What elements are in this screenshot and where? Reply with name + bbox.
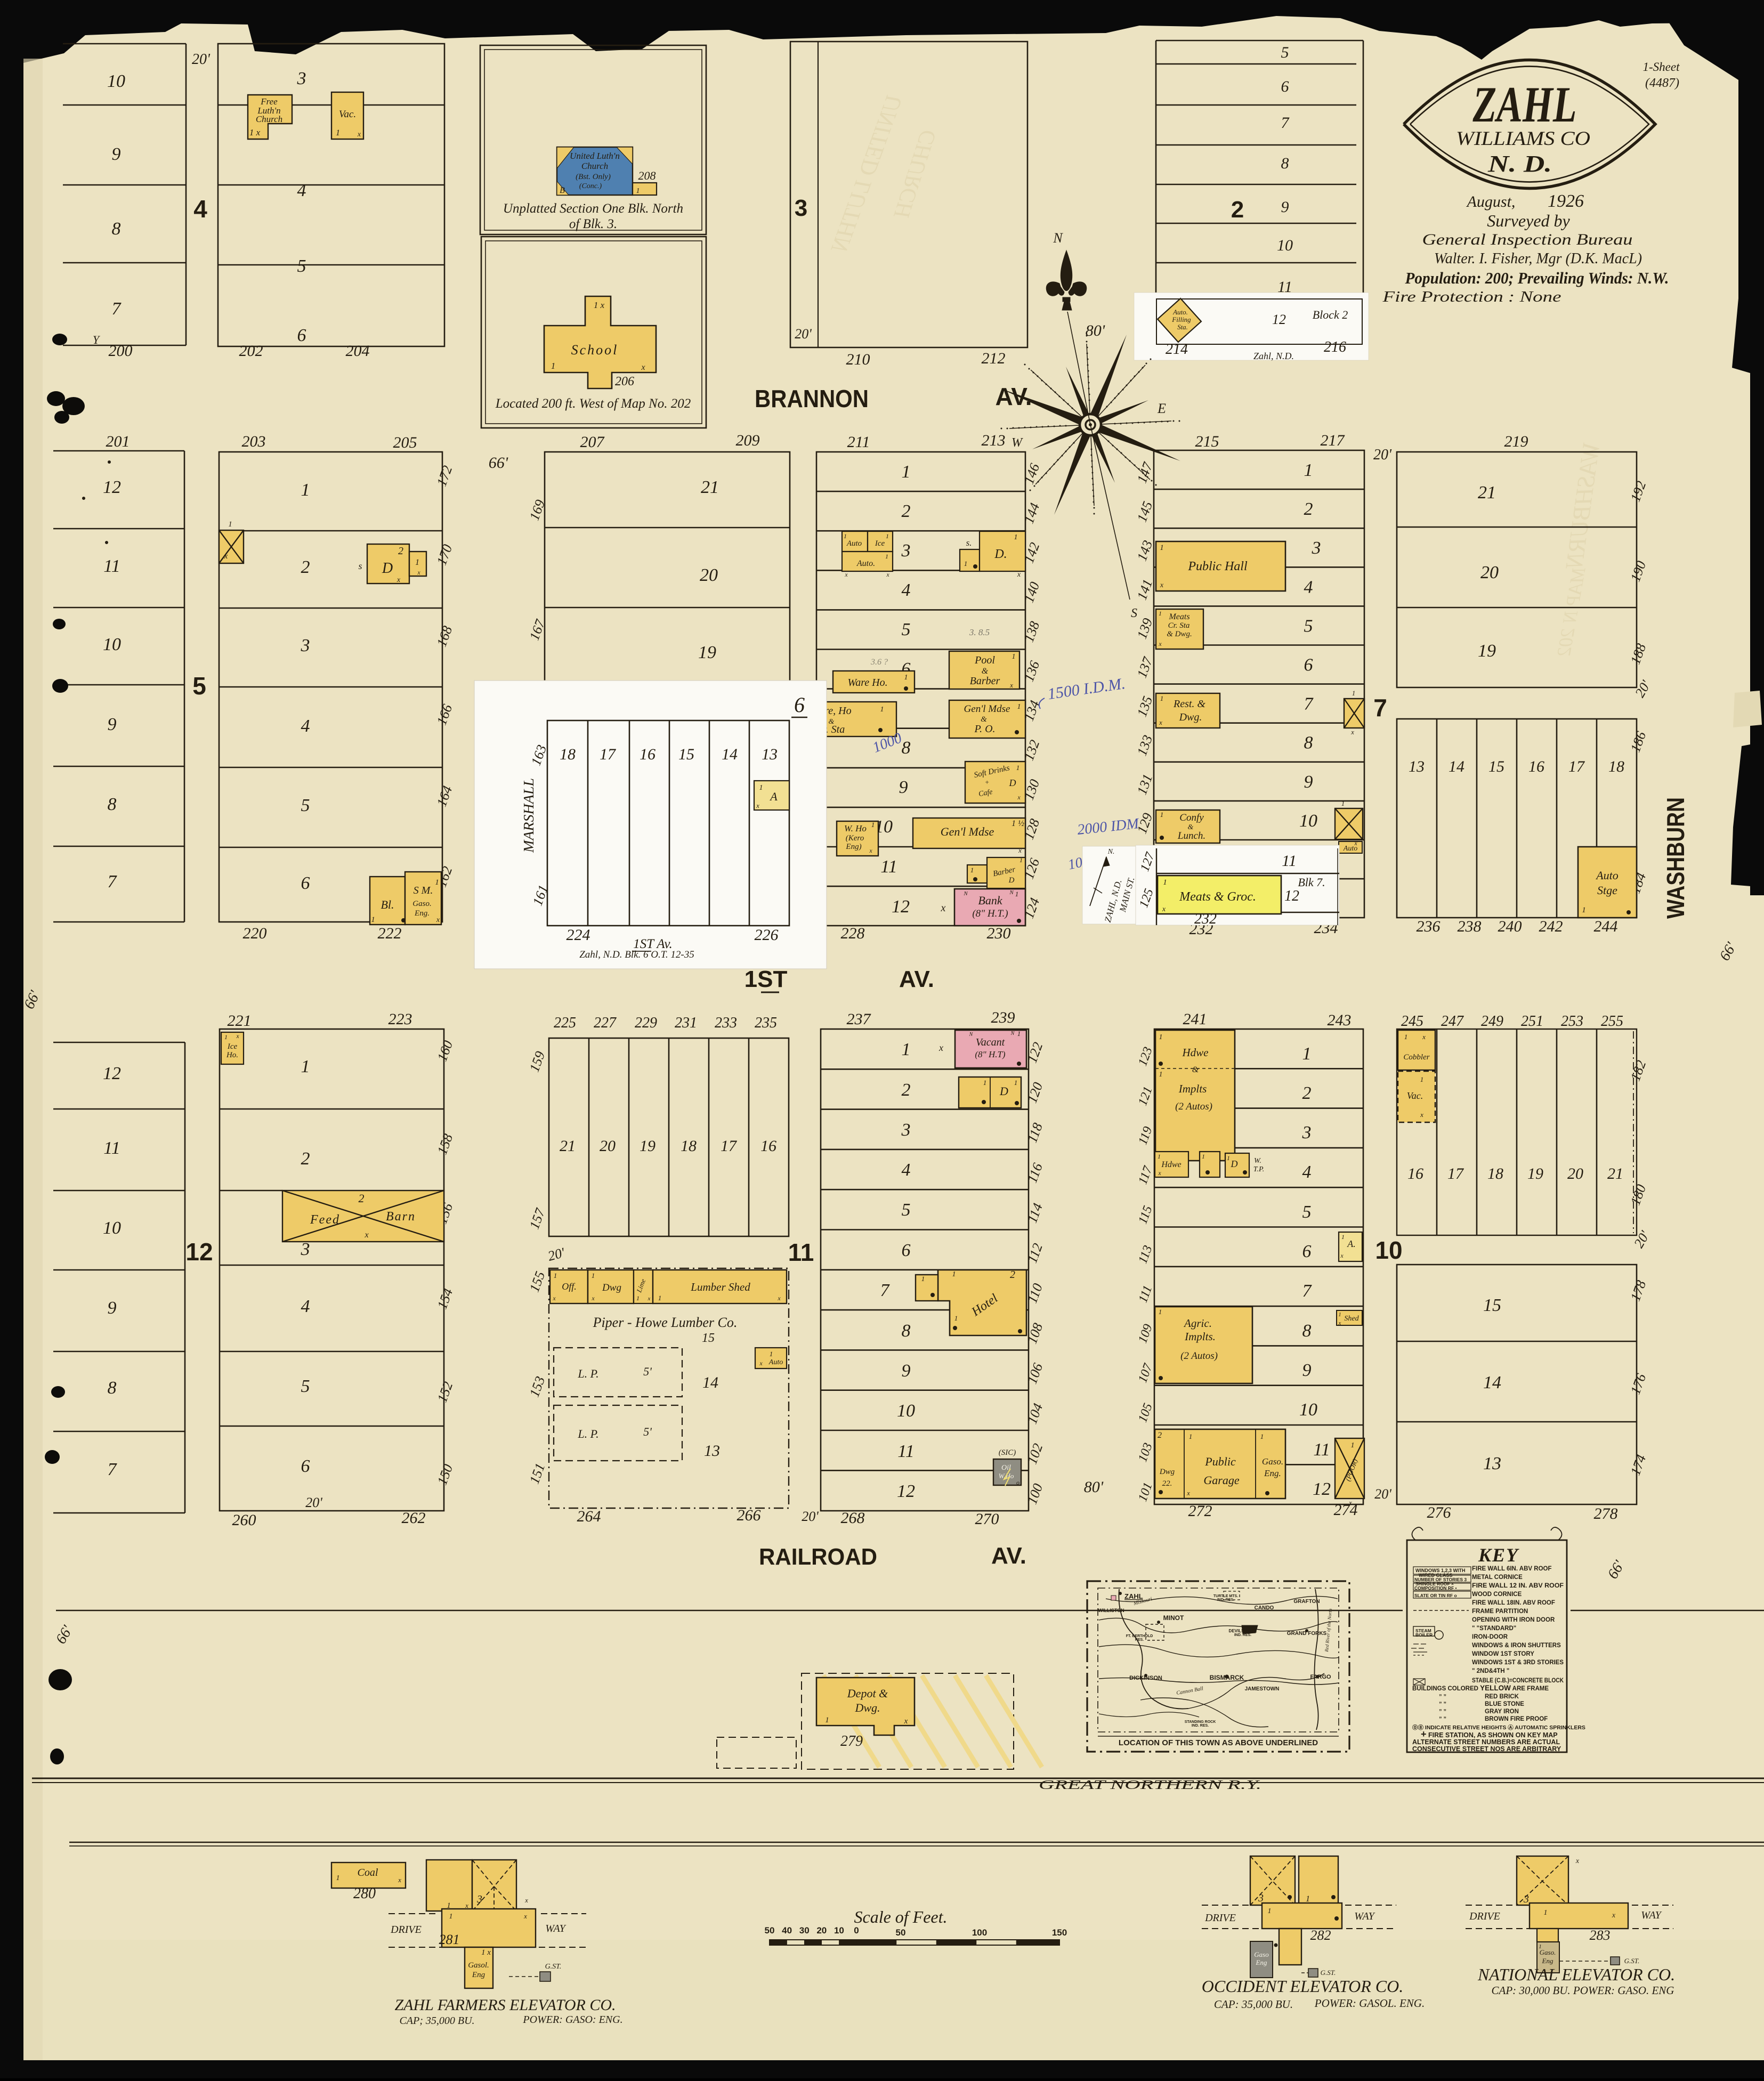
svg-text:20: 20 <box>816 1925 827 1936</box>
svg-text:12: 12 <box>1313 1479 1331 1499</box>
svg-text:Meats & Groc.: Meats & Groc. <box>1179 890 1256 904</box>
svg-text:x: x <box>1159 718 1162 726</box>
svg-text:3: 3 <box>901 541 911 561</box>
svg-text:7: 7 <box>880 1281 891 1300</box>
svg-text:DRIVE: DRIVE <box>1469 1910 1500 1922</box>
svg-text:1: 1 <box>1015 890 1019 898</box>
svg-text:1: 1 <box>1338 1311 1341 1318</box>
svg-text:19: 19 <box>640 1137 656 1155</box>
svg-text:279: 279 <box>840 1733 863 1750</box>
svg-text:5: 5 <box>902 1200 911 1220</box>
svg-text:214: 214 <box>1166 341 1188 358</box>
svg-text:Barn: Barn <box>386 1210 416 1224</box>
svg-text:AV.: AV. <box>991 1543 1026 1569</box>
svg-text:1: 1 <box>964 560 968 568</box>
svg-text:20': 20' <box>795 326 812 342</box>
svg-text:4: 4 <box>193 195 207 223</box>
svg-text:8: 8 <box>112 219 121 239</box>
svg-text:5: 5 <box>1304 616 1313 636</box>
svg-text:260: 260 <box>232 1511 256 1529</box>
svg-text:7: 7 <box>1304 694 1314 714</box>
svg-text:FIRE WALL 12 IN. ABV ROOF: FIRE WALL 12 IN. ABV ROOF <box>1472 1583 1564 1589</box>
svg-text:10: 10 <box>103 1218 121 1238</box>
svg-text:x: x <box>1162 905 1166 913</box>
svg-text:5: 5 <box>192 672 206 700</box>
svg-text:1: 1 <box>551 361 556 371</box>
svg-text:L. P.: L. P. <box>577 1427 598 1440</box>
svg-text:Unplatted Section One Blk. Nor: Unplatted Section One Blk. North <box>503 201 683 216</box>
svg-text:228: 228 <box>841 925 865 942</box>
svg-text:Agric.: Agric. <box>1183 1317 1212 1330</box>
svg-text:243: 243 <box>1328 1011 1352 1029</box>
svg-text:1: 1 <box>885 553 888 560</box>
svg-text:STANDING ROCK: STANDING ROCK <box>1185 1720 1216 1724</box>
svg-text:Auto: Auto <box>768 1358 783 1366</box>
svg-text:Vac.: Vac. <box>1407 1090 1423 1101</box>
svg-text:1: 1 <box>1159 1308 1162 1316</box>
svg-text:223: 223 <box>389 1010 412 1028</box>
svg-text:Dwg.: Dwg. <box>854 1701 880 1714</box>
svg-text:" "STANDARD": " "STANDARD" <box>1472 1625 1516 1632</box>
svg-text:N: N <box>1009 889 1014 896</box>
svg-text:United Luth'n: United Luth'n <box>570 151 620 161</box>
svg-text:2: 2 <box>1302 1083 1312 1103</box>
svg-text:274: 274 <box>1334 1501 1358 1519</box>
svg-text:7: 7 <box>1373 694 1387 722</box>
svg-text:Bl.: Bl. <box>381 898 394 911</box>
svg-text:JAMESTOWN: JAMESTOWN <box>1245 1686 1280 1692</box>
svg-text:LOCATION OF THIS TOWN AS ABOVE: LOCATION OF THIS TOWN AS ABOVE UNDERLINE… <box>1119 1738 1318 1747</box>
svg-text:1: 1 <box>1582 906 1586 914</box>
svg-text:19: 19 <box>698 643 716 662</box>
svg-text:11: 11 <box>788 1238 814 1266</box>
svg-text:7: 7 <box>1302 1281 1313 1301</box>
svg-text:(2 Autos): (2 Autos) <box>1180 1350 1218 1362</box>
svg-text:(4487): (4487) <box>1645 76 1679 90</box>
svg-text:Eng: Eng <box>472 1971 485 1979</box>
svg-text:18: 18 <box>681 1137 697 1155</box>
svg-text:200: 200 <box>109 342 133 360</box>
svg-text:Public: Public <box>1204 1455 1236 1468</box>
svg-text:1: 1 <box>825 1716 829 1724</box>
svg-text:x: x <box>886 571 889 578</box>
svg-text:x: x <box>1158 1169 1161 1177</box>
svg-text:1 x: 1 x <box>249 127 261 137</box>
svg-text:Auto.: Auto. <box>856 559 875 568</box>
svg-text:August,: August, <box>1466 193 1516 210</box>
svg-text:3: 3 <box>795 195 807 221</box>
svg-text:1: 1 <box>228 520 232 529</box>
svg-text:230: 230 <box>987 925 1011 942</box>
svg-text:12: 12 <box>103 477 121 497</box>
svg-text:11: 11 <box>1313 1440 1330 1460</box>
svg-text:21: 21 <box>1607 1165 1623 1183</box>
svg-text:Vac.: Vac. <box>339 109 356 120</box>
svg-text:1: 1 <box>871 821 875 829</box>
svg-text:Bank: Bank <box>978 894 1002 907</box>
svg-text:Eng: Eng <box>1542 1957 1553 1965</box>
svg-text:Located 200 ft. West of Map No: Located 200 ft. West of Map No. 202 <box>495 396 691 411</box>
svg-text:20': 20' <box>305 1495 322 1510</box>
svg-text:8: 8 <box>1304 733 1313 753</box>
svg-text:x: x <box>1017 571 1021 579</box>
svg-text:WILLIAMS CO: WILLIAMS CO <box>1456 128 1590 150</box>
svg-text:⓪⑧ INDICATE RELATIVE HEIGHTS Ⓐ: ⓪⑧ INDICATE RELATIVE HEIGHTS Ⓐ AUTOMATIC… <box>1412 1724 1585 1731</box>
svg-text:3: 3 <box>901 1120 911 1140</box>
svg-text:18: 18 <box>1487 1165 1503 1183</box>
svg-text:6: 6 <box>1281 78 1289 95</box>
svg-text:17: 17 <box>600 746 617 763</box>
svg-text:17: 17 <box>721 1137 738 1155</box>
svg-text:10: 10 <box>107 71 125 91</box>
svg-text:9: 9 <box>1304 772 1313 792</box>
svg-text:253: 253 <box>1561 1013 1583 1030</box>
svg-text:1 x: 1 x <box>481 1948 491 1957</box>
svg-text:&: & <box>981 715 987 724</box>
svg-text:6: 6 <box>301 1456 310 1476</box>
svg-text:Fire Protection : None: Fire Protection : None <box>1382 288 1561 305</box>
svg-text:12: 12 <box>897 1481 915 1501</box>
svg-text:IND. RES.: IND. RES. <box>1192 1724 1209 1728</box>
svg-text:20: 20 <box>700 565 718 585</box>
svg-text:210: 210 <box>846 351 870 368</box>
svg-text:10: 10 <box>897 1401 915 1421</box>
svg-text:Stge: Stge <box>1597 884 1617 897</box>
svg-text:1: 1 <box>658 1294 662 1302</box>
svg-text:1: 1 <box>636 1294 640 1302</box>
svg-text:244: 244 <box>1594 918 1618 935</box>
svg-text:(Conc.): (Conc.) <box>579 182 602 190</box>
svg-text:Block 2: Block 2 <box>1313 308 1348 321</box>
svg-text:Blk 7.: Blk 7. <box>1298 876 1325 889</box>
svg-text:Church: Church <box>256 114 282 124</box>
svg-text:D: D <box>999 1084 1008 1098</box>
svg-text:x: x <box>357 131 361 139</box>
svg-text:GREAT NORTHERN R.Y.: GREAT NORTHERN R.Y. <box>1039 1778 1261 1792</box>
svg-text:1: 1 <box>983 1079 987 1087</box>
svg-text:236: 236 <box>1417 918 1441 935</box>
svg-text:231: 231 <box>675 1015 697 1031</box>
svg-text:Dwg.: Dwg. <box>1179 711 1202 723</box>
svg-text:247: 247 <box>1441 1013 1464 1030</box>
svg-text:8: 8 <box>902 738 911 758</box>
svg-text:1: 1 <box>1351 1442 1355 1450</box>
svg-text:150: 150 <box>1052 1928 1067 1938</box>
svg-text:1: 1 <box>1404 1033 1408 1041</box>
svg-text:Feed: Feed <box>310 1213 340 1227</box>
svg-text:IND. RES.: IND. RES. <box>1234 1633 1251 1637</box>
svg-text:20': 20' <box>192 51 211 68</box>
svg-text:x: x <box>417 569 420 576</box>
svg-text:206: 206 <box>615 375 634 388</box>
svg-text:Confy: Confy <box>1179 812 1204 823</box>
svg-text:6: 6 <box>301 873 310 893</box>
svg-text:2: 2 <box>398 545 403 557</box>
svg-text:FIRE WALL 6IN. ABV ROOF: FIRE WALL 6IN. ABV ROOF <box>1472 1566 1552 1572</box>
svg-text:22.: 22. <box>1162 1479 1172 1488</box>
svg-text:Ware Ho.: Ware Ho. <box>847 677 887 689</box>
svg-text:CAP: 30,000 BU. POWER: GASO: CAP: 30,000 BU. POWER: GASO. ENG <box>1492 1984 1674 1997</box>
svg-text:66': 66' <box>489 454 508 472</box>
svg-text:W: W <box>1012 436 1023 450</box>
svg-text:x: x <box>1340 1252 1344 1259</box>
svg-text:" 2ND&4TH ": " 2ND&4TH " <box>1472 1668 1509 1674</box>
svg-text:2: 2 <box>1010 1269 1015 1281</box>
svg-text:S: S <box>1131 606 1137 620</box>
svg-text:2: 2 <box>902 1080 911 1100</box>
svg-text:W.: W. <box>1254 1157 1261 1165</box>
svg-text:2: 2 <box>1231 197 1244 223</box>
svg-text:7: 7 <box>1281 114 1290 132</box>
svg-text:Eng: Eng <box>1256 1958 1267 1966</box>
svg-text:3: 3 <box>297 69 306 88</box>
svg-text:11: 11 <box>1282 852 1297 870</box>
svg-text:1: 1 <box>1158 1153 1161 1160</box>
svg-text:B: B <box>560 186 565 195</box>
svg-text:5: 5 <box>902 620 911 639</box>
svg-text:1: 1 <box>1260 1432 1264 1440</box>
svg-text:Lumber Shed: Lumber Shed <box>690 1281 750 1293</box>
svg-text:x: x <box>398 1876 401 1884</box>
svg-text:(2 Autos): (2 Autos) <box>1175 1101 1212 1112</box>
svg-text:270: 270 <box>975 1510 999 1528</box>
svg-text:x: x <box>524 1896 528 1904</box>
svg-text:WAY: WAY <box>1354 1910 1375 1922</box>
svg-text:x: x <box>364 1230 368 1240</box>
svg-text:1 x: 1 x <box>594 300 605 310</box>
svg-text:216: 216 <box>1324 339 1346 355</box>
svg-text:235: 235 <box>755 1015 777 1031</box>
svg-text:x: x <box>436 916 440 924</box>
svg-text:16: 16 <box>760 1137 776 1155</box>
svg-text:8: 8 <box>902 1321 911 1341</box>
svg-text:2: 2 <box>301 1149 310 1169</box>
svg-text:9: 9 <box>108 1298 117 1318</box>
svg-text:OPENING WITH IRON DOOR: OPENING WITH IRON DOOR <box>1472 1617 1555 1623</box>
svg-text:240: 240 <box>1498 918 1522 935</box>
svg-text:x: x <box>1350 728 1354 736</box>
svg-text:19: 19 <box>1527 1165 1543 1183</box>
svg-text:” ”: ” ” <box>1439 1708 1446 1715</box>
svg-text:Zahl, N.D.: Zahl, N.D. <box>1253 351 1294 361</box>
svg-text:3: 3 <box>301 1240 310 1259</box>
svg-text:x: x <box>1158 640 1162 647</box>
svg-text:DEVILS LAKE: DEVILS LAKE <box>1229 1629 1258 1633</box>
svg-text:1: 1 <box>970 866 974 874</box>
svg-text:DRIVE: DRIVE <box>1204 1912 1236 1924</box>
svg-text:x: x <box>1160 581 1164 589</box>
svg-text:10: 10 <box>103 635 121 654</box>
svg-text:278: 278 <box>1594 1505 1618 1523</box>
svg-text:245: 245 <box>1401 1013 1423 1030</box>
svg-text:226: 226 <box>755 926 779 944</box>
svg-text:BOILER: BOILER <box>1415 1632 1433 1638</box>
svg-text:G.ST.: G.ST. <box>1624 1957 1640 1965</box>
svg-text:x: x <box>777 1294 781 1302</box>
svg-text:242: 242 <box>1539 918 1563 935</box>
svg-text:1: 1 <box>954 1314 958 1322</box>
svg-text:80': 80' <box>1086 322 1105 339</box>
svg-text:1-Sheet: 1-Sheet <box>1643 60 1680 74</box>
svg-text:212: 212 <box>982 350 1006 367</box>
svg-text:1: 1 <box>1014 1079 1018 1087</box>
svg-text:x: x <box>236 1032 239 1040</box>
svg-text:Pool: Pool <box>974 654 995 666</box>
svg-text:x: x <box>552 1294 556 1302</box>
svg-text:L. P.: L. P. <box>577 1367 598 1380</box>
svg-text:1: 1 <box>592 1272 595 1280</box>
svg-text:30: 30 <box>799 1925 810 1936</box>
svg-text:1: 1 <box>1160 544 1164 552</box>
svg-text:Rest. &: Rest. & <box>1173 698 1205 710</box>
svg-text:Gaso.: Gaso. <box>1262 1456 1283 1467</box>
svg-text:238: 238 <box>1458 918 1482 935</box>
svg-text:E: E <box>1157 401 1166 416</box>
svg-text:OCCIDENT ELEVATOR CO.: OCCIDENT ELEVATOR CO. <box>1202 1977 1403 1996</box>
svg-text:1: 1 <box>1304 460 1313 480</box>
svg-text:Sta.: Sta. <box>1177 323 1188 331</box>
svg-text:Barber: Barber <box>970 675 1000 687</box>
svg-text:15: 15 <box>702 1331 715 1345</box>
svg-text:10: 10 <box>1375 1236 1402 1264</box>
svg-text:ZAHL FARMERS ELEVATOR CO.: ZAHL FARMERS ELEVATOR CO. <box>394 1996 616 2014</box>
svg-text:1: 1 <box>1306 1894 1310 1904</box>
svg-text:of Blk. 3.: of Blk. 3. <box>569 217 617 231</box>
svg-text:Scale of Feet.: Scale of Feet. <box>854 1907 947 1926</box>
svg-text:9: 9 <box>1281 198 1289 216</box>
svg-text:6: 6 <box>902 1241 911 1260</box>
svg-text:262: 262 <box>402 1509 426 1527</box>
svg-text:3: 3 <box>1312 538 1321 558</box>
svg-text:13: 13 <box>1483 1454 1501 1473</box>
svg-text:1: 1 <box>1159 1071 1163 1079</box>
svg-text:GRAFTON: GRAFTON <box>1293 1599 1320 1605</box>
svg-text:203: 203 <box>242 433 266 450</box>
svg-text:(SIC): (SIC) <box>999 1448 1016 1457</box>
svg-text:10: 10 <box>1277 237 1293 254</box>
svg-text:FT. BERTHOLD: FT. BERTHOLD <box>1126 1634 1153 1638</box>
svg-text:x: x <box>1009 681 1013 689</box>
svg-text:11: 11 <box>103 1138 120 1158</box>
svg-text:12: 12 <box>185 1238 213 1266</box>
svg-text:4: 4 <box>301 1297 310 1316</box>
svg-text:5': 5' <box>643 1365 652 1378</box>
svg-text:50: 50 <box>765 1925 775 1936</box>
svg-text:80': 80' <box>1084 1478 1104 1496</box>
svg-text:Surveyed by: Surveyed by <box>1487 211 1570 230</box>
svg-text:WAY: WAY <box>545 1923 566 1934</box>
svg-text:SLATE OR TIN RF o: SLATE OR TIN RF o <box>1414 1593 1457 1598</box>
svg-text:Eng): Eng) <box>845 843 861 851</box>
svg-text:N: N <box>1053 230 1063 246</box>
svg-text:6: 6 <box>794 693 805 717</box>
svg-text:213: 213 <box>982 432 1006 449</box>
svg-text:222: 222 <box>378 925 402 942</box>
svg-text:x: x <box>641 363 645 372</box>
svg-text:1: 1 <box>435 878 439 887</box>
svg-text:1: 1 <box>902 462 911 482</box>
svg-text:204: 204 <box>346 342 370 360</box>
svg-text:10: 10 <box>1299 1400 1317 1420</box>
svg-text:x: x <box>904 1717 908 1726</box>
svg-text:x: x <box>465 1901 468 1909</box>
svg-text:16: 16 <box>640 746 656 763</box>
svg-text:Shed: Shed <box>1344 1315 1359 1323</box>
svg-text:15: 15 <box>1488 758 1504 775</box>
svg-text:201: 201 <box>106 433 130 450</box>
svg-text:13: 13 <box>704 1442 720 1460</box>
svg-text:8: 8 <box>1302 1321 1312 1341</box>
svg-text:1: 1 <box>1302 1044 1312 1064</box>
svg-text:G.ST.: G.ST. <box>1321 1969 1336 1977</box>
svg-text:202: 202 <box>239 342 263 360</box>
svg-text:16: 16 <box>1407 1165 1423 1183</box>
svg-text:x: x <box>1422 1033 1426 1041</box>
svg-text:9: 9 <box>108 715 117 734</box>
svg-text:40: 40 <box>782 1925 792 1936</box>
svg-text:1: 1 <box>1544 1909 1548 1917</box>
svg-text:1 ½: 1 ½ <box>1012 819 1024 828</box>
svg-text:4: 4 <box>902 1160 911 1180</box>
svg-text:9: 9 <box>1302 1361 1312 1380</box>
svg-text:&: & <box>1192 1065 1199 1074</box>
svg-text:12: 12 <box>103 1064 121 1083</box>
svg-text:1: 1 <box>301 480 310 500</box>
svg-text:8: 8 <box>108 1378 117 1398</box>
svg-text:4: 4 <box>1302 1162 1312 1182</box>
svg-text:KEY: KEY <box>1478 1544 1519 1566</box>
svg-text:1: 1 <box>1352 689 1356 697</box>
svg-text:2: 2 <box>1158 1431 1162 1440</box>
svg-text:FRAME PARTITION: FRAME PARTITION <box>1472 1608 1528 1615</box>
svg-text:20: 20 <box>1480 563 1499 582</box>
svg-text:0: 0 <box>854 1925 859 1936</box>
svg-text:4: 4 <box>902 580 911 600</box>
svg-text:1: 1 <box>1014 533 1018 541</box>
svg-text:1: 1 <box>770 1350 773 1358</box>
svg-text:255: 255 <box>1601 1013 1623 1030</box>
svg-text:School: School <box>571 342 619 358</box>
svg-text:224: 224 <box>567 926 590 944</box>
svg-text:Gaso: Gaso <box>1254 1950 1269 1958</box>
svg-text:1: 1 <box>1539 1944 1542 1950</box>
svg-text:1: 1 <box>1163 878 1167 887</box>
svg-text:5: 5 <box>1281 44 1289 61</box>
svg-text:S M.: S M. <box>414 885 433 896</box>
svg-text:x: x <box>1186 1489 1190 1497</box>
svg-text:239: 239 <box>991 1009 1015 1026</box>
svg-text:8: 8 <box>108 795 117 814</box>
svg-text:x: x <box>523 1912 527 1920</box>
svg-text:CAP; 35,000 BU.: CAP; 35,000 BU. <box>399 2015 474 2027</box>
svg-text:D.: D. <box>994 547 1007 561</box>
svg-text:& Dwg.: & Dwg. <box>1167 630 1192 638</box>
svg-text:12: 12 <box>1272 312 1286 327</box>
svg-text:” ”: ” ” <box>1439 1716 1446 1722</box>
svg-text:1: 1 <box>1202 1153 1205 1160</box>
svg-text:IND. RES.: IND. RES. <box>1217 1598 1234 1602</box>
svg-text:3.6 ?: 3.6 ? <box>870 658 888 667</box>
svg-text:(8" H.T): (8" H.T) <box>975 1049 1006 1059</box>
svg-text:9: 9 <box>112 144 121 164</box>
svg-text:IRON-DOOR: IRON-DOOR <box>1472 1634 1508 1640</box>
svg-text:1926: 1926 <box>1548 191 1584 211</box>
svg-text:WASHBURN: WASHBURN <box>1662 797 1689 919</box>
svg-text:241: 241 <box>1183 1010 1207 1028</box>
svg-text:BRANNON: BRANNON <box>755 385 869 412</box>
svg-text:1: 1 <box>636 187 640 195</box>
svg-text:x: x <box>869 847 872 854</box>
